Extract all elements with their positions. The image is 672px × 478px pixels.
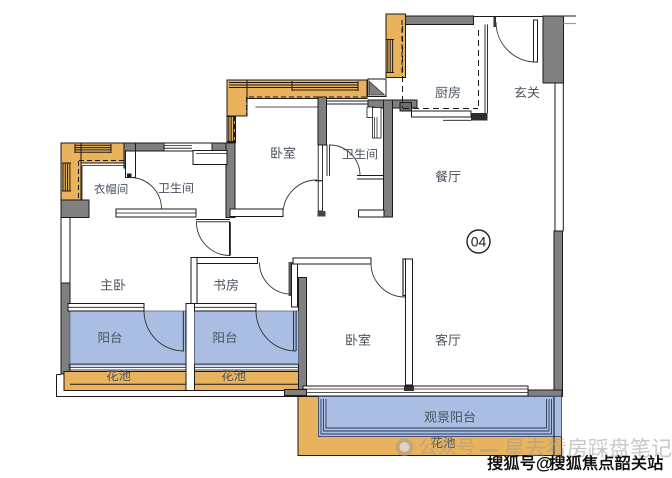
svg-text:04: 04 bbox=[471, 234, 487, 250]
svg-text:@: @ bbox=[536, 453, 553, 473]
